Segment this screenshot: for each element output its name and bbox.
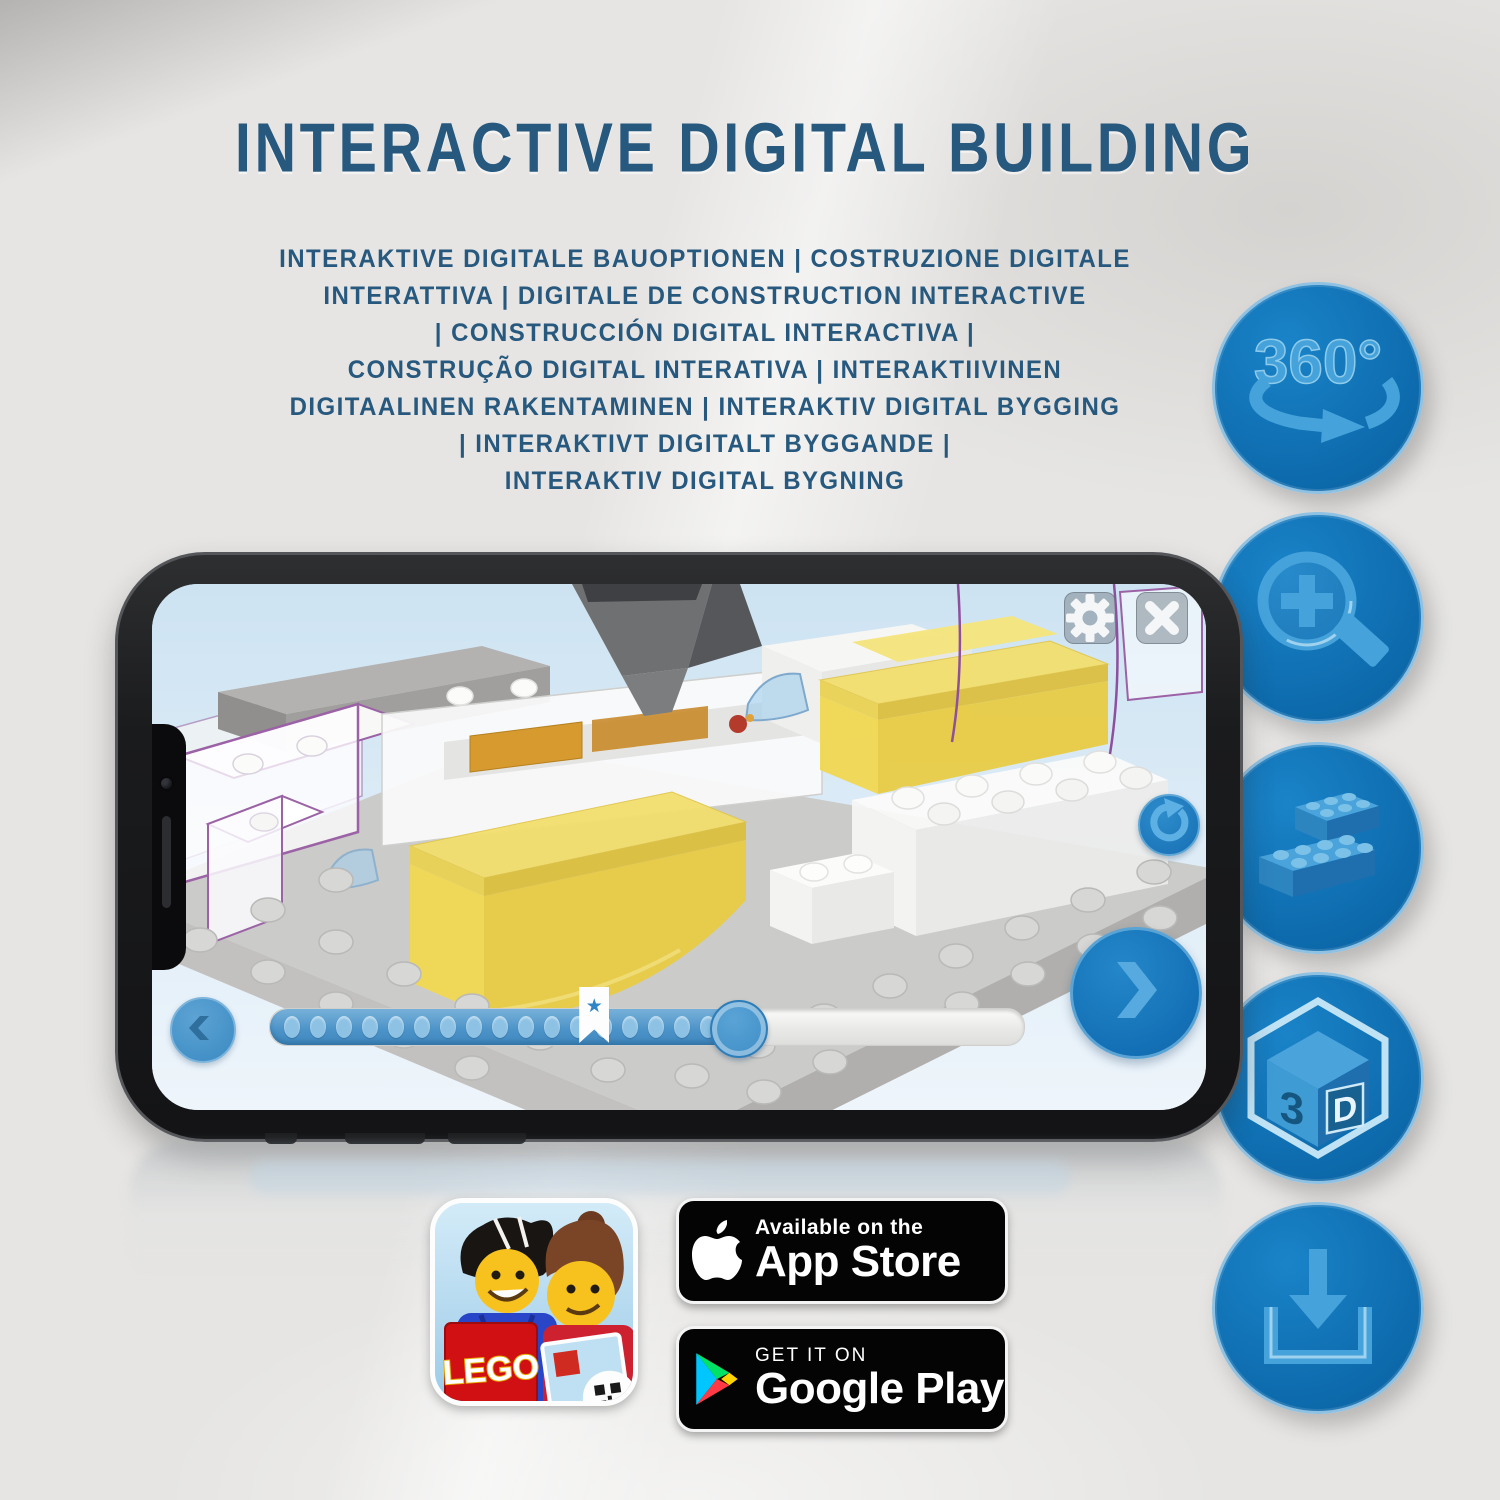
brick-options-icon: [1215, 745, 1421, 951]
reflection-ghost-bar: [250, 1160, 1070, 1194]
download-icon: [1215, 1205, 1421, 1411]
speaker-grille: [162, 816, 171, 908]
subtitle-line: INTERATTIVA | DIGITALE DE CONSTRUCTION I…: [28, 278, 1382, 315]
app-store-tagline: Available on the: [755, 1217, 961, 1239]
settings-button[interactable]: [1064, 592, 1116, 644]
subtitle-multilingual: INTERAKTIVE DIGITALE BAUOPTIONEN | COSTR…: [28, 241, 1382, 500]
subtitle-line: CONSTRUÇÃO DIGITAL INTERATIVA | INTERAKT…: [28, 352, 1382, 389]
google-play-tagline: GET IT ON: [755, 1346, 1004, 1366]
phone-screen: ★: [152, 584, 1206, 1110]
chevron-right-icon: [1073, 930, 1193, 1050]
360-label: 360°: [1254, 328, 1382, 397]
close-button[interactable]: [1136, 592, 1188, 644]
rotate-icon: [1140, 796, 1194, 850]
phone-mockup: ★: [115, 552, 1243, 1142]
front-camera: [161, 778, 172, 789]
3d-view-icon: 3 D: [1215, 975, 1421, 1181]
feature-zoom: [1212, 512, 1424, 724]
subtitle-line: | INTERAKTIVT DIGITALT BYGGANDE |: [28, 426, 1382, 463]
feature-download: [1212, 1202, 1424, 1414]
page-title: INTERACTIVE DIGITAL BUILDING: [75, 108, 1416, 188]
chevron-left-icon: [172, 999, 230, 1057]
360-rotation-icon: 360°: [1215, 285, 1421, 491]
phone-notch: [152, 724, 186, 970]
google-play-name: Google Play: [755, 1366, 1004, 1412]
app-store-name: App Store: [755, 1239, 961, 1285]
close-icon: [1137, 593, 1187, 643]
subtitle-line: INTERAKTIVE DIGITALE BAUOPTIONEN | COSTR…: [28, 241, 1382, 278]
app-store-badge[interactable]: Available on the App Store: [676, 1198, 1008, 1304]
previous-step-button[interactable]: [170, 997, 236, 1063]
feature-360-rotation: 360°: [1212, 282, 1424, 494]
next-step-button[interactable]: [1070, 927, 1202, 1059]
zoom-in-icon: [1215, 515, 1421, 721]
apple-icon: [679, 1220, 755, 1282]
google-play-badge[interactable]: GET IT ON Google Play: [676, 1326, 1008, 1432]
lego-app-artwork: LEGO: [435, 1203, 633, 1401]
3d-right-label: D: [1333, 1088, 1358, 1131]
rotate-part-button[interactable]: [1138, 794, 1200, 856]
page: INTERACTIVE DIGITAL BUILDING INTERAKTIVE…: [0, 0, 1500, 1500]
feature-3d-view: 3 D: [1212, 972, 1424, 1184]
google-play-icon: [679, 1351, 755, 1407]
subtitle-line: | CONSTRUCCIÓN DIGITAL INTERACTIVA |: [28, 315, 1382, 352]
subtitle-line: INTERAKTIV DIGITAL BYGNING: [28, 463, 1382, 500]
feature-brick-options: [1212, 742, 1424, 954]
lego-app-icon[interactable]: LEGO: [430, 1198, 638, 1406]
gear-icon: [1065, 593, 1115, 643]
3d-left-label: 3: [1280, 1082, 1304, 1136]
subtitle-line: DIGITAALINEN RAKENTAMINEN | INTERAKTIV D…: [28, 389, 1382, 426]
progress-fill: [270, 1009, 737, 1045]
build-progress-slider[interactable]: ★: [269, 1008, 1025, 1046]
lego-logo-text: LEGO: [442, 1348, 541, 1393]
